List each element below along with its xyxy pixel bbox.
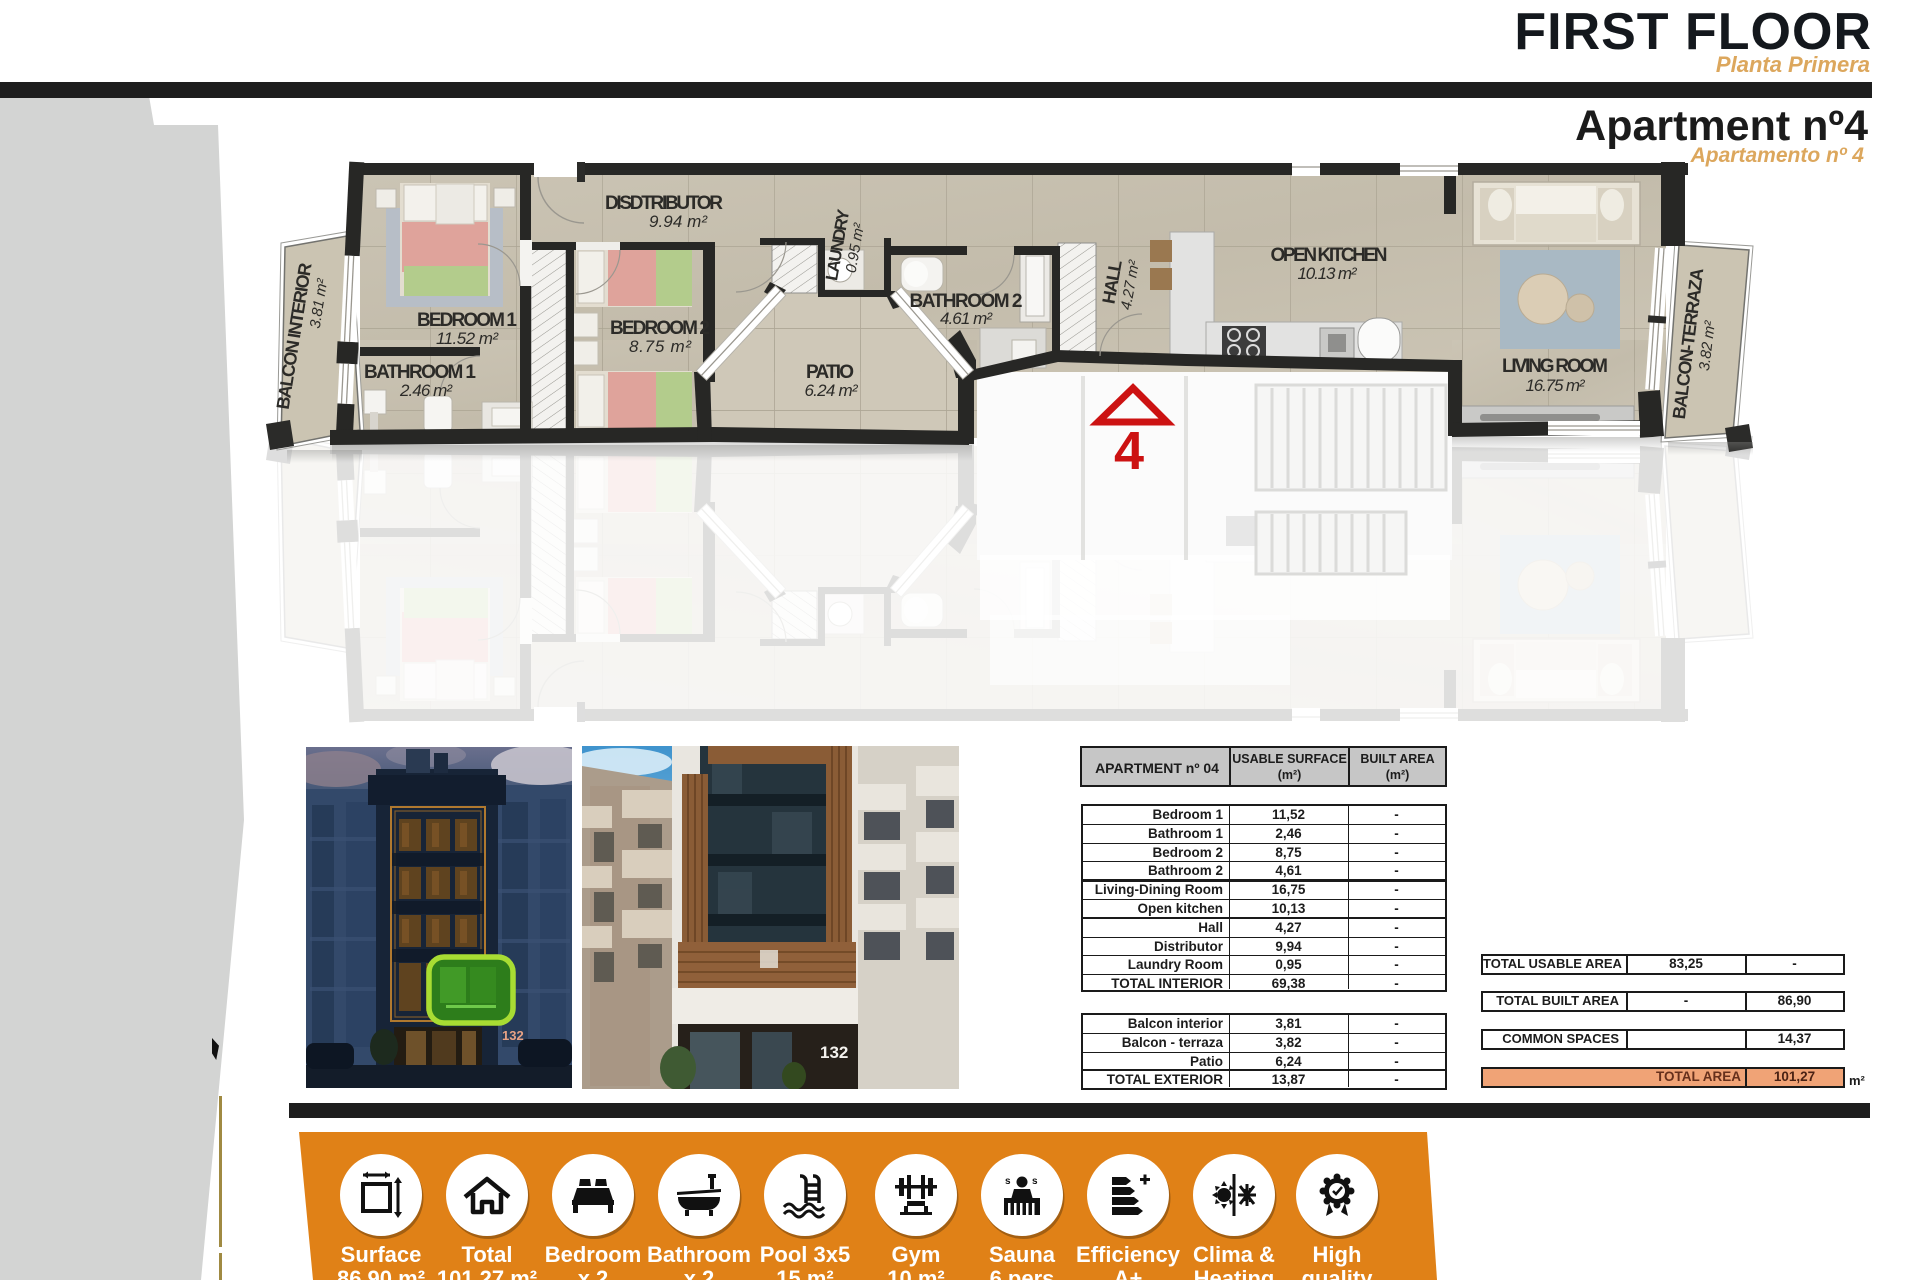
svg-text:6.24 m²: 6.24 m² [805, 381, 859, 400]
svg-text:Clima &: Clima & [1193, 1242, 1275, 1267]
svg-text:DISDTRIBUTOR: DISDTRIBUTOR [605, 193, 723, 214]
svg-text:101,27 m²: 101,27 m² [437, 1266, 537, 1280]
svg-text:2.46 m²: 2.46 m² [399, 381, 453, 400]
svg-text:Bedroom: Bedroom [545, 1242, 642, 1267]
svg-text:132: 132 [502, 1028, 524, 1043]
svg-text:Gym: Gym [892, 1242, 941, 1267]
svg-text:BATHROOM 1: BATHROOM 1 [364, 362, 476, 383]
svg-text:PATIO: PATIO [806, 362, 854, 383]
svg-text:16.75 m²: 16.75 m² [1526, 376, 1586, 395]
svg-text:Efficiency: Efficiency [1076, 1242, 1181, 1267]
svg-text:11.52 m²: 11.52 m² [436, 329, 499, 348]
svg-text:6 pers: 6 pers [990, 1266, 1055, 1280]
svg-text:132: 132 [820, 1043, 848, 1062]
svg-text:10.13 m²: 10.13 m² [1298, 264, 1358, 283]
svg-text:9.94 m²: 9.94 m² [649, 212, 708, 231]
svg-text:x 2: x 2 [578, 1266, 609, 1280]
svg-text:BEDROOM 1: BEDROOM 1 [417, 310, 517, 331]
svg-text:8.75 m²: 8.75 m² [629, 337, 692, 356]
svg-text:10 m²: 10 m² [887, 1266, 944, 1280]
svg-text:A+: A+ [1114, 1266, 1143, 1280]
svg-text:LIVING ROOM: LIVING ROOM [1502, 356, 1608, 377]
svg-text:Heating: Heating [1194, 1266, 1275, 1280]
svg-text:x 2: x 2 [684, 1266, 715, 1280]
svg-text:OPEN KITCHEN: OPEN KITCHEN [1271, 245, 1388, 266]
svg-text:High: High [1313, 1242, 1362, 1267]
svg-text:4: 4 [1114, 421, 1144, 481]
svg-text:quality: quality [1302, 1266, 1374, 1280]
svg-text:15 m²: 15 m² [776, 1266, 833, 1280]
svg-text:Bathroom: Bathroom [647, 1242, 751, 1267]
svg-text:4.61 m²: 4.61 m² [940, 309, 993, 328]
svg-text:Total: Total [462, 1242, 513, 1267]
svg-text:86,90 m²: 86,90 m² [337, 1266, 425, 1280]
svg-text:BEDROOM 2: BEDROOM 2 [610, 318, 710, 339]
svg-text:Surface: Surface [341, 1242, 422, 1267]
svg-text:Pool 3x5: Pool 3x5 [760, 1242, 850, 1267]
svg-text:Sauna: Sauna [989, 1242, 1056, 1267]
